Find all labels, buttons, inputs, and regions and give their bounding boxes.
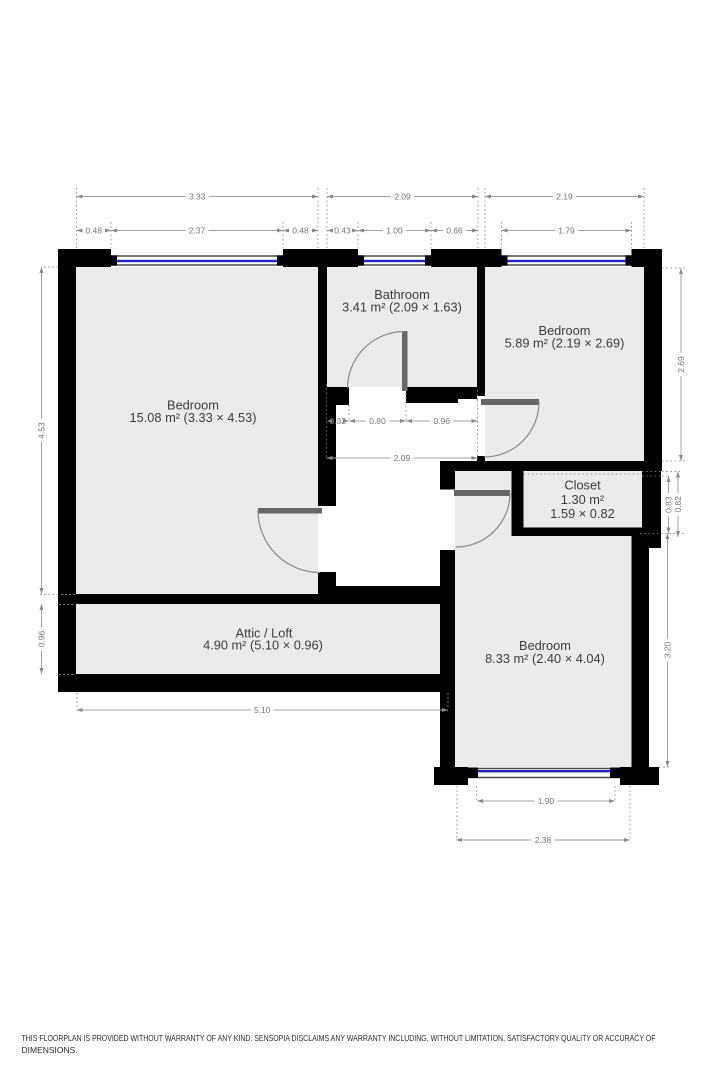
svg-text:2.38: 2.38 xyxy=(535,835,552,845)
svg-text:0.82: 0.82 xyxy=(673,496,683,513)
svg-text:0.96: 0.96 xyxy=(37,630,47,647)
svg-text:0.66: 0.66 xyxy=(446,226,463,236)
svg-text:0.83: 0.83 xyxy=(664,496,674,513)
svg-text:2.19: 2.19 xyxy=(556,192,573,202)
svg-text:1.79: 1.79 xyxy=(558,226,575,236)
svg-text:1.00: 1.00 xyxy=(386,226,403,236)
svg-text:1.59 × 0.82: 1.59 × 0.82 xyxy=(550,506,614,521)
svg-text:8.33 m² (2.40 × 4.04): 8.33 m² (2.40 × 4.04) xyxy=(485,651,605,666)
svg-text:2.37: 2.37 xyxy=(189,226,206,236)
svg-text:THIS FLOORPLAN IS PROVIDED WIT: THIS FLOORPLAN IS PROVIDED WITHOUT WARRA… xyxy=(22,1033,656,1043)
svg-text:0.48: 0.48 xyxy=(85,226,102,236)
svg-text:4.90 m² (5.10 × 0.96): 4.90 m² (5.10 × 0.96) xyxy=(203,638,323,653)
svg-text:1.30 m²: 1.30 m² xyxy=(561,492,605,507)
svg-text:2.69: 2.69 xyxy=(676,356,686,373)
svg-text:2.09: 2.09 xyxy=(394,453,411,463)
svg-text:0.80: 0.80 xyxy=(369,416,386,426)
svg-text:4.53: 4.53 xyxy=(37,422,47,439)
svg-text:15.08 m² (3.33 × 4.53): 15.08 m² (3.33 × 4.53) xyxy=(130,410,257,425)
svg-text:5.10: 5.10 xyxy=(254,705,271,715)
svg-text:3.33: 3.33 xyxy=(189,192,206,202)
svg-text:3.20: 3.20 xyxy=(663,641,673,658)
svg-text:Closet: Closet xyxy=(564,478,601,493)
svg-text:5.89 m² (2.19 × 2.69): 5.89 m² (2.19 × 2.69) xyxy=(505,336,625,351)
svg-text:1.90: 1.90 xyxy=(538,796,555,806)
svg-text:0.43: 0.43 xyxy=(334,226,351,236)
svg-text:3.41 m² (2.09 × 1.63): 3.41 m² (2.09 × 1.63) xyxy=(342,300,462,315)
svg-text:2.09: 2.09 xyxy=(394,192,411,202)
svg-text:DIMENSIONS.: DIMENSIONS. xyxy=(22,1045,78,1055)
svg-text:0.96: 0.96 xyxy=(433,416,450,426)
svg-text:0.32: 0.32 xyxy=(329,416,346,426)
svg-text:0.48: 0.48 xyxy=(292,226,309,236)
